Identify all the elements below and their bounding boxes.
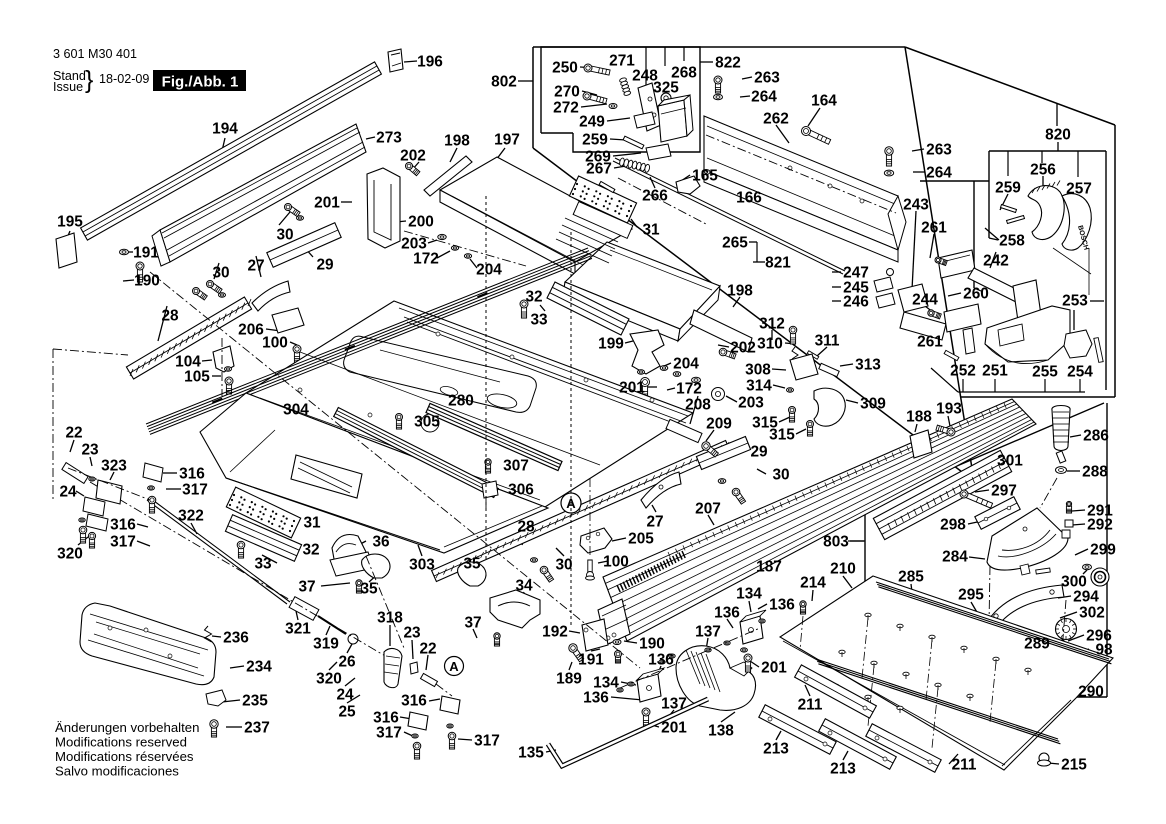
svg-text:320: 320 xyxy=(316,671,342,688)
svg-text:26: 26 xyxy=(338,654,355,671)
svg-text:316: 316 xyxy=(401,693,427,710)
svg-text:270: 270 xyxy=(554,84,580,101)
svg-text:285: 285 xyxy=(898,569,924,586)
svg-text:213: 213 xyxy=(830,761,856,778)
svg-text:820: 820 xyxy=(1045,127,1071,144)
svg-text:317: 317 xyxy=(376,725,402,742)
svg-text:194: 194 xyxy=(212,121,238,138)
svg-text:307: 307 xyxy=(503,458,529,475)
svg-text:197: 197 xyxy=(494,132,520,149)
svg-text:313: 313 xyxy=(855,357,881,374)
svg-text:136: 136 xyxy=(648,652,674,669)
svg-text:202: 202 xyxy=(730,340,756,357)
svg-text:821: 821 xyxy=(765,255,791,272)
svg-text:314: 314 xyxy=(746,378,772,395)
svg-text:23: 23 xyxy=(81,442,98,459)
svg-text:29: 29 xyxy=(750,444,767,461)
svg-text:311: 311 xyxy=(815,333,840,350)
svg-text:3 601 M30 401: 3 601 M30 401 xyxy=(53,47,137,61)
svg-text:215: 215 xyxy=(1061,757,1087,774)
svg-text:254: 254 xyxy=(1067,364,1093,381)
svg-text:135: 135 xyxy=(518,745,544,762)
svg-text:250: 250 xyxy=(552,60,578,77)
svg-text:264: 264 xyxy=(751,89,777,106)
svg-text:289: 289 xyxy=(1024,636,1050,653)
svg-text:305: 305 xyxy=(414,414,440,431)
svg-text:201: 201 xyxy=(619,380,645,397)
svg-text:198: 198 xyxy=(444,133,470,150)
svg-text:260: 260 xyxy=(963,286,989,303)
svg-text:251: 251 xyxy=(982,363,1008,380)
svg-text:235: 235 xyxy=(242,693,268,710)
svg-text:319: 319 xyxy=(313,636,339,653)
svg-text:288: 288 xyxy=(1082,464,1108,481)
svg-text:210: 210 xyxy=(830,561,856,578)
svg-text:172: 172 xyxy=(676,381,702,398)
svg-text:294: 294 xyxy=(1073,589,1099,606)
svg-text:36: 36 xyxy=(372,534,389,551)
svg-text:316: 316 xyxy=(110,517,136,534)
svg-text:196: 196 xyxy=(417,54,443,71)
svg-text:214: 214 xyxy=(800,575,826,592)
svg-text:201: 201 xyxy=(314,195,340,212)
svg-text:137: 137 xyxy=(695,624,721,641)
svg-text:165: 165 xyxy=(692,168,718,185)
svg-text:303: 303 xyxy=(409,557,435,574)
svg-text:172: 172 xyxy=(413,251,439,268)
svg-text:242: 242 xyxy=(983,253,1009,270)
svg-text:323: 323 xyxy=(101,458,127,475)
svg-text:246: 246 xyxy=(843,294,869,311)
svg-text:201: 201 xyxy=(761,660,787,677)
svg-text:259: 259 xyxy=(995,180,1021,197)
svg-text:316: 316 xyxy=(179,466,205,483)
svg-text:Fig./Abb. 1: Fig./Abb. 1 xyxy=(162,74,239,91)
svg-text:211: 211 xyxy=(798,697,823,714)
svg-text:195: 195 xyxy=(57,214,83,231)
svg-text:Issue: Issue xyxy=(53,80,83,94)
svg-text:32: 32 xyxy=(302,542,319,559)
svg-text:822: 822 xyxy=(715,55,741,72)
svg-text:259: 259 xyxy=(582,132,608,149)
svg-text:249: 249 xyxy=(579,114,605,131)
svg-text:266: 266 xyxy=(642,188,668,205)
svg-text:236: 236 xyxy=(223,630,249,647)
svg-text:28: 28 xyxy=(161,308,179,325)
svg-text:262: 262 xyxy=(763,111,789,128)
svg-text:22: 22 xyxy=(419,641,436,658)
svg-text:200: 200 xyxy=(408,214,434,231)
svg-text:30: 30 xyxy=(555,557,572,574)
svg-text:37: 37 xyxy=(464,615,481,632)
svg-text:138: 138 xyxy=(708,723,734,740)
svg-text:193: 193 xyxy=(936,401,962,418)
svg-text:191: 191 xyxy=(133,245,159,262)
svg-text:22: 22 xyxy=(65,425,82,442)
svg-text:204: 204 xyxy=(673,356,699,373)
svg-text:295: 295 xyxy=(958,587,984,604)
svg-text:302: 302 xyxy=(1079,605,1105,622)
svg-text:199: 199 xyxy=(598,336,624,353)
svg-text:100: 100 xyxy=(262,335,288,352)
svg-text:192: 192 xyxy=(542,624,568,641)
svg-text:290: 290 xyxy=(1078,684,1104,701)
svg-text:29: 29 xyxy=(316,257,333,274)
svg-text:Änderungen vorbehalten: Änderungen vorbehalten xyxy=(55,720,199,735)
svg-text:}: } xyxy=(85,66,93,94)
svg-text:255: 255 xyxy=(1032,364,1058,381)
svg-text:189: 189 xyxy=(556,671,582,688)
svg-text:257: 257 xyxy=(1066,181,1092,198)
svg-text:301: 301 xyxy=(997,453,1023,470)
svg-text:206: 206 xyxy=(238,322,264,339)
svg-text:202: 202 xyxy=(400,148,426,165)
svg-text:317: 317 xyxy=(182,482,208,499)
svg-text:34: 34 xyxy=(515,578,533,595)
svg-text:190: 190 xyxy=(134,273,160,290)
svg-text:136: 136 xyxy=(769,597,795,614)
svg-text:291: 291 xyxy=(1087,503,1113,520)
svg-text:37: 37 xyxy=(298,579,315,596)
svg-text:Modifications réservées: Modifications réservées xyxy=(55,749,194,764)
svg-text:261: 261 xyxy=(917,334,943,351)
svg-text:27: 27 xyxy=(247,258,264,275)
svg-text:258: 258 xyxy=(999,233,1025,250)
svg-text:Salvo modificaciones: Salvo modificaciones xyxy=(55,764,179,779)
svg-text:136: 136 xyxy=(714,605,740,622)
svg-text:272: 272 xyxy=(553,100,579,117)
svg-text:308: 308 xyxy=(745,362,771,379)
svg-text:35: 35 xyxy=(360,581,378,598)
svg-text:28: 28 xyxy=(517,519,535,536)
svg-text:137: 137 xyxy=(661,696,687,713)
svg-text:30: 30 xyxy=(212,265,229,282)
svg-text:300: 300 xyxy=(1061,574,1087,591)
svg-text:237: 237 xyxy=(244,720,270,737)
svg-text:280: 280 xyxy=(448,393,474,410)
svg-text:320: 320 xyxy=(57,546,83,563)
svg-text:317: 317 xyxy=(474,733,500,750)
svg-text:304: 304 xyxy=(283,402,309,419)
svg-text:286: 286 xyxy=(1083,428,1109,445)
svg-text:803: 803 xyxy=(823,534,849,551)
svg-text:273: 273 xyxy=(376,130,402,147)
svg-text:24: 24 xyxy=(336,687,354,704)
svg-text:30: 30 xyxy=(276,227,293,244)
svg-text:201: 201 xyxy=(661,720,687,737)
svg-text:31: 31 xyxy=(642,222,660,239)
svg-text:35: 35 xyxy=(463,556,481,573)
svg-text:188: 188 xyxy=(906,409,932,426)
svg-text:322: 322 xyxy=(178,508,204,525)
svg-text:25: 25 xyxy=(338,704,356,721)
svg-text:263: 263 xyxy=(926,142,952,159)
svg-text:134: 134 xyxy=(736,586,762,603)
svg-text:299: 299 xyxy=(1090,542,1116,559)
svg-text:306: 306 xyxy=(508,482,534,499)
svg-text:315: 315 xyxy=(769,427,795,444)
svg-text:164: 164 xyxy=(811,93,837,110)
svg-text:317: 317 xyxy=(110,534,136,551)
svg-text:190: 190 xyxy=(639,636,665,653)
svg-text:325: 325 xyxy=(653,80,679,97)
svg-text:24: 24 xyxy=(59,484,77,501)
svg-text:310: 310 xyxy=(757,336,783,353)
svg-text:187: 187 xyxy=(756,559,782,576)
svg-text:264: 264 xyxy=(926,165,952,182)
svg-text:263: 263 xyxy=(754,70,780,87)
svg-text:321: 321 xyxy=(285,621,311,638)
svg-text:284: 284 xyxy=(942,549,968,566)
svg-text:27: 27 xyxy=(646,514,663,531)
svg-text:256: 256 xyxy=(1030,162,1056,179)
svg-text:18-02-09: 18-02-09 xyxy=(99,72,149,86)
svg-text:312: 312 xyxy=(759,316,785,333)
svg-text:243: 243 xyxy=(903,197,929,214)
svg-text:98: 98 xyxy=(1095,642,1113,659)
svg-text:265: 265 xyxy=(722,235,748,252)
svg-text:23: 23 xyxy=(403,625,420,642)
svg-text:298: 298 xyxy=(940,517,966,534)
svg-text:211: 211 xyxy=(952,757,977,774)
svg-text:30: 30 xyxy=(772,467,789,484)
svg-text:Modifications reserved: Modifications reserved xyxy=(55,735,187,750)
svg-text:267: 267 xyxy=(586,161,612,178)
svg-text:A: A xyxy=(449,659,459,674)
svg-text:204: 204 xyxy=(476,262,502,279)
svg-text:100: 100 xyxy=(603,554,629,571)
svg-text:297: 297 xyxy=(991,483,1017,500)
svg-text:309: 309 xyxy=(860,396,886,413)
svg-text:32: 32 xyxy=(525,289,542,306)
svg-text:253: 253 xyxy=(1062,293,1088,310)
svg-text:203: 203 xyxy=(738,395,764,412)
svg-text:166: 166 xyxy=(736,190,762,207)
svg-text:207: 207 xyxy=(695,501,721,518)
svg-text:33: 33 xyxy=(530,312,547,329)
svg-text:208: 208 xyxy=(685,397,711,414)
svg-text:191: 191 xyxy=(578,652,604,669)
svg-text:318: 318 xyxy=(377,610,403,627)
svg-text:802: 802 xyxy=(491,74,517,91)
svg-text:244: 244 xyxy=(912,292,938,309)
svg-text:213: 213 xyxy=(763,741,789,758)
svg-text:205: 205 xyxy=(628,531,654,548)
svg-text:31: 31 xyxy=(303,515,321,532)
svg-text:136: 136 xyxy=(583,690,609,707)
svg-text:209: 209 xyxy=(706,416,732,433)
svg-text:252: 252 xyxy=(950,363,976,380)
svg-text:105: 105 xyxy=(184,369,210,386)
svg-text:234: 234 xyxy=(246,659,272,676)
svg-text:261: 261 xyxy=(921,220,947,237)
svg-text:33: 33 xyxy=(254,556,271,573)
svg-text:198: 198 xyxy=(727,283,753,300)
